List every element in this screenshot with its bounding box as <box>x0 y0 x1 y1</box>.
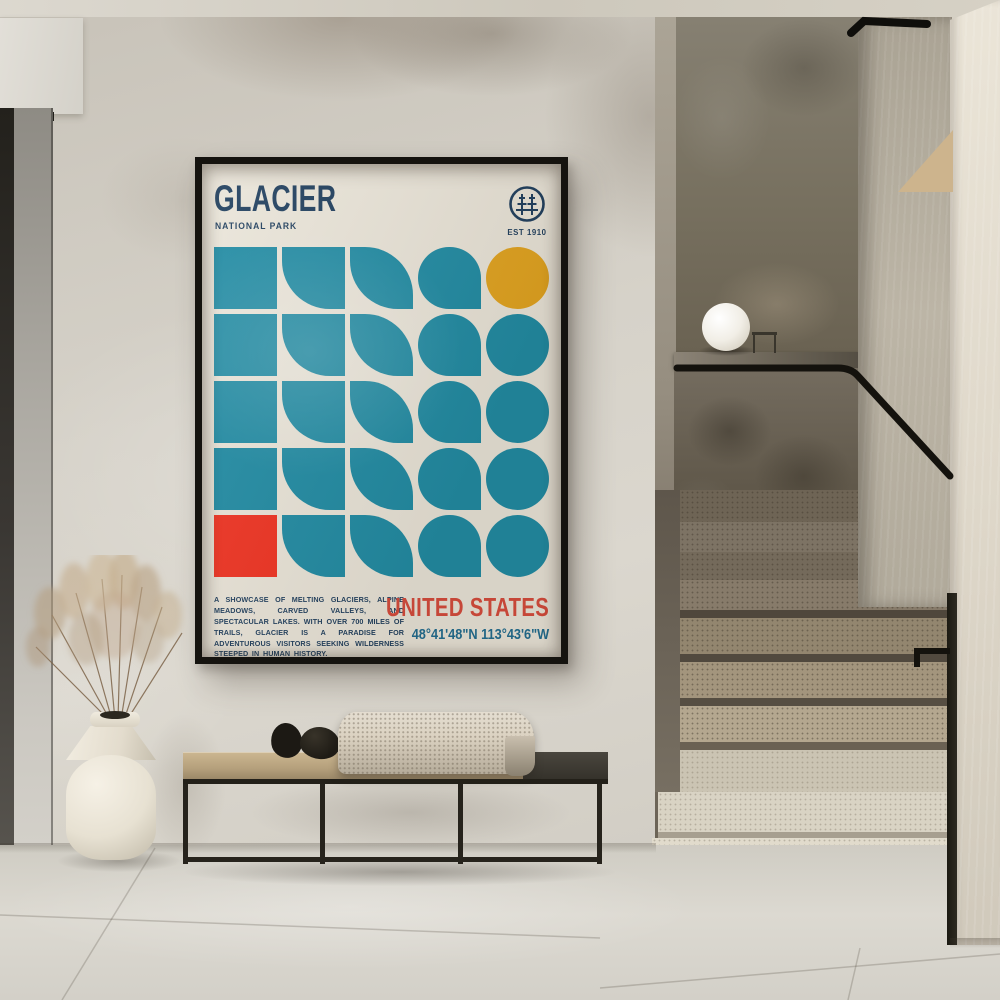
small-stand-leg <box>753 335 755 353</box>
grid-shape-round-bl <box>282 448 345 510</box>
left-glass-panel <box>14 108 53 874</box>
grid-shape-drop <box>418 448 481 510</box>
poster-grid <box>214 247 549 577</box>
stair-step-shadow <box>680 698 952 706</box>
dried-pampas-plant <box>10 555 220 725</box>
grid-shape-round-bl <box>282 247 345 309</box>
sphere-lamp <box>702 303 750 351</box>
left-dark-wall-edge <box>0 108 15 874</box>
stair-step-shadow <box>680 654 952 662</box>
poster-country: UNITED STATES <box>386 592 549 623</box>
stair-half-wall-ledge <box>674 352 859 368</box>
grid-shape-leaf <box>350 381 413 443</box>
poster-established: EST 1910 <box>498 227 557 237</box>
grid-shape-round-bl <box>282 515 345 577</box>
poster-subtitle: NATIONAL PARK <box>215 221 297 232</box>
bench-floor-shadow <box>185 858 615 886</box>
grid-shape-drop <box>418 381 481 443</box>
bench-bottom-rail <box>183 857 602 862</box>
stair-step <box>680 618 952 654</box>
stair-side-shadow <box>655 490 682 792</box>
blanket-fold <box>505 736 535 776</box>
grid-shape-circle <box>486 448 549 510</box>
pine-trees-icon <box>505 182 549 226</box>
grid-shape-circle <box>486 314 549 376</box>
bench-dark-top-section <box>523 752 608 779</box>
interior-scene: GLACIER NATIONAL PARK EST 1910 A SHOWCAS… <box>0 0 1000 1000</box>
right-wall-base-shadow <box>950 938 1000 948</box>
glacier-poster: GLACIER NATIONAL PARK EST 1910 A SHOWCAS… <box>202 164 561 657</box>
poster-coordinates: 48°41'48"N 113°43'6"W <box>371 626 549 643</box>
grid-shape-drop <box>418 247 481 309</box>
grid-shape-square <box>214 515 277 577</box>
grid-shape-circle <box>486 381 549 443</box>
small-stand-leg <box>774 335 776 353</box>
stair-partition-wall <box>858 17 952 607</box>
bench-leg <box>597 784 602 864</box>
grid-shape-square <box>214 448 277 510</box>
poster-frame: GLACIER NATIONAL PARK EST 1910 A SHOWCAS… <box>195 157 568 664</box>
bench-frame-rail <box>183 779 608 784</box>
right-wall-edge-trim <box>947 593 957 945</box>
right-foreground-wall <box>950 0 1000 945</box>
stair-step-shadow <box>680 610 952 618</box>
grid-shape-circle <box>486 515 549 577</box>
grid-shape-circle <box>486 247 549 309</box>
grid-shape-drop <box>418 515 481 577</box>
poster-footer-right: UNITED STATES 48°41'48"N 113°43'6"W <box>340 592 549 643</box>
grid-shape-square <box>214 314 277 376</box>
stair-step-shadow <box>680 742 952 750</box>
grid-shape-square <box>214 381 277 443</box>
grid-shape-leaf <box>350 515 413 577</box>
grid-shape-round-bl <box>282 314 345 376</box>
stair-step-wide <box>658 792 952 832</box>
vase-opening <box>100 711 130 719</box>
stair-step <box>680 706 952 742</box>
grid-shape-leaf <box>350 448 413 510</box>
poster-title: GLACIER <box>214 178 336 220</box>
bench-leg <box>183 784 188 864</box>
grid-shape-leaf <box>350 314 413 376</box>
vase-body <box>66 755 156 860</box>
grid-shape-round-bl <box>282 381 345 443</box>
bench-leg <box>458 784 463 864</box>
ceiling-soffit <box>0 18 83 114</box>
stair-step <box>680 750 952 792</box>
grid-shape-drop <box>418 314 481 376</box>
stair-step <box>680 662 952 698</box>
grid-shape-square <box>214 247 277 309</box>
bench-leg <box>320 784 325 864</box>
stairwell-back-wall <box>676 17 859 355</box>
grid-shape-leaf <box>350 247 413 309</box>
